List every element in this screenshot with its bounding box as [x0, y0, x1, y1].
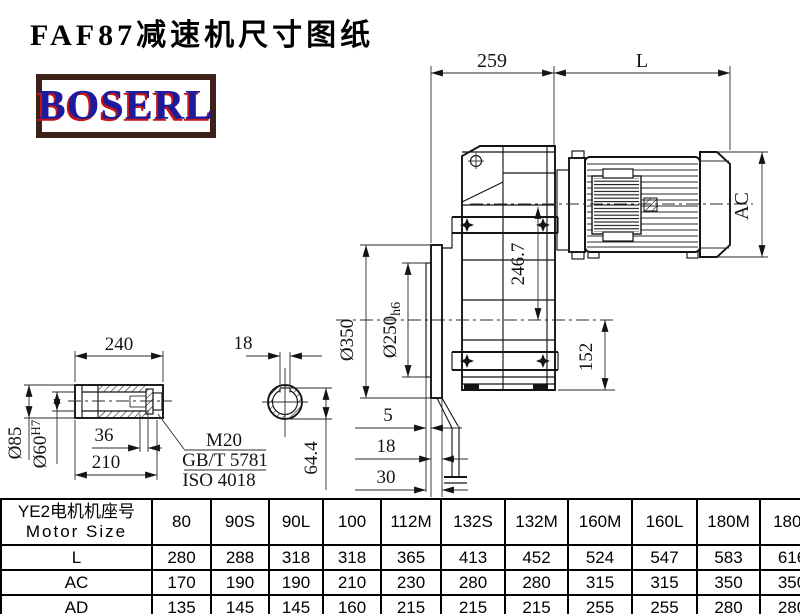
bolt-icon — [536, 354, 550, 368]
table-column-header: 160L — [632, 499, 697, 545]
table-cell: 145 — [269, 595, 323, 614]
table-cell: 145 — [211, 595, 269, 614]
table-cell: 315 — [568, 570, 632, 595]
motor-size-label-cn: YE2电机机座号 — [2, 502, 151, 522]
motor-size-table: YE2电机机座号Motor Size8090S90L100112M132S132… — [0, 498, 798, 614]
flange-offset-dimensions: 5 18 30 — [355, 377, 468, 497]
dim-offset-30: 30 — [377, 467, 396, 488]
table-cell: 210 — [323, 570, 381, 595]
dim-bore: Ø60H7 — [28, 419, 51, 468]
table-row-label: AC — [1, 570, 152, 595]
table-row-label: AD — [1, 595, 152, 614]
leader-standard-iso: ISO 4018 — [182, 470, 255, 491]
dim-210: 210 — [92, 452, 121, 473]
table-cell: 215 — [441, 595, 505, 614]
dim-bottom-height: 152 — [576, 343, 597, 372]
dim-L: L — [636, 50, 648, 72]
dim-259: 259 — [477, 50, 507, 72]
bolt-head — [153, 393, 162, 410]
table-cell: 547 — [632, 545, 697, 570]
table-column-header: 112M — [381, 499, 441, 545]
dim-keyway-depth: 64.4 — [301, 441, 322, 475]
table-column-header: 132M — [505, 499, 568, 545]
dim-36: 36 — [95, 425, 114, 446]
table-column-header: 180M — [697, 499, 760, 545]
dim-keyway-width: 18 — [234, 333, 253, 354]
table-column-header: 90S — [211, 499, 269, 545]
terminal-box-clamp — [603, 232, 633, 241]
table-cell: 350 — [760, 570, 800, 595]
table-cell: 413 — [441, 545, 505, 570]
shaft-section — [644, 198, 657, 211]
drawing-sheet: FAF87减速机尺寸图纸 BOSERL .o2{stroke:#141414;s… — [0, 0, 800, 614]
end-washer — [146, 389, 153, 414]
dim-shaft-od: Ø85 — [5, 427, 26, 460]
table-cell: 215 — [381, 595, 441, 614]
leader-thread: M20 — [206, 430, 242, 451]
output-flange — [426, 233, 467, 483]
table-cell: 318 — [269, 545, 323, 570]
dim-spigot: Ø250h6 — [380, 302, 404, 358]
dim-flange-od: Ø350 — [337, 319, 358, 361]
dim-offset-5: 5 — [383, 405, 393, 426]
table-header-row: YE2电机机座号Motor Size8090S90L100112M132S132… — [1, 499, 800, 545]
foot-pad — [464, 384, 479, 390]
dim-240: 240 — [105, 334, 134, 355]
dim-center-height: 246.7 — [508, 243, 529, 286]
top-dimensions: 259 L — [431, 50, 730, 243]
foot-pad — [533, 384, 548, 390]
table-column-header: 180L — [760, 499, 800, 545]
motor-size-label-en: Motor Size — [2, 522, 151, 542]
terminal-box-clamp — [603, 169, 633, 178]
table-column-header: 80 — [152, 499, 211, 545]
table-cell: 288 — [211, 545, 269, 570]
table-cell: 616 — [760, 545, 800, 570]
table-cell: 170 — [152, 570, 211, 595]
table-cell: 280 — [760, 595, 800, 614]
table-cell: 318 — [323, 545, 381, 570]
table-cell: 135 — [152, 595, 211, 614]
table-cell: 160 — [323, 595, 381, 614]
leader-standard-gb: GB/T 5781 — [182, 450, 268, 471]
table-cell: 280 — [441, 570, 505, 595]
table-cell: 524 — [568, 545, 632, 570]
dim-offset-18: 18 — [377, 436, 396, 457]
hollow-shaft-detail: 240 Ø85 Ø60H7 36 210 — [5, 334, 268, 491]
table-cell: 280 — [505, 570, 568, 595]
table-cell: 255 — [632, 595, 697, 614]
table-cell: 365 — [381, 545, 441, 570]
technical-drawing: .o2{stroke:#141414;stroke-width:1.9;fill… — [0, 0, 800, 498]
table-row: AC170190190210230280280315315350350 — [1, 570, 800, 595]
table-column-header: 160M — [568, 499, 632, 545]
table-column-header: 132S — [441, 499, 505, 545]
table-cell: 190 — [211, 570, 269, 595]
table-column-header: 90L — [269, 499, 323, 545]
table-cell: 215 — [505, 595, 568, 614]
table-row: L280288318318365413452524547583616 — [1, 545, 800, 570]
table-cell: 583 — [697, 545, 760, 570]
table-row-label: L — [1, 545, 152, 570]
table-column-header: 100 — [323, 499, 381, 545]
dim-AC: AC — [731, 192, 753, 220]
table-cell: 190 — [269, 570, 323, 595]
table-row: AD135145145160215215215255255280280 — [1, 595, 800, 614]
table-cell: 452 — [505, 545, 568, 570]
table-cell: 350 — [697, 570, 760, 595]
table-cell: 280 — [152, 545, 211, 570]
fan-cowl — [700, 152, 730, 257]
gearbox-housing — [336, 146, 617, 390]
table-cell: 280 — [697, 595, 760, 614]
table-cell: 255 — [568, 595, 632, 614]
table-cell: 315 — [632, 570, 697, 595]
table-header-motor-size: YE2电机机座号Motor Size — [1, 499, 152, 545]
table-cell: 230 — [381, 570, 441, 595]
